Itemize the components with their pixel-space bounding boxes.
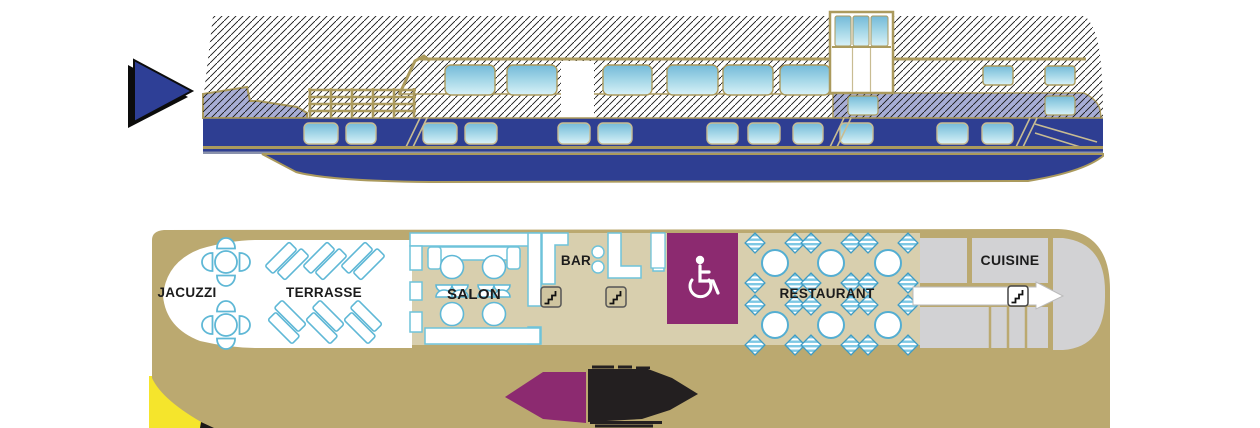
cuisine-area: CUISINE — [913, 238, 1105, 350]
hull-window-band — [203, 118, 1103, 150]
stern-lavender-band — [833, 93, 1101, 118]
ship-side-profile — [128, 12, 1103, 182]
ship-deck-plan-figure: JACUZZI TERRASSE — [0, 0, 1260, 428]
cuisine-label: CUISINE — [981, 252, 1040, 268]
stairs-icon — [541, 287, 561, 307]
deck-plan: JACUZZI TERRASSE — [149, 229, 1110, 428]
jacuzzi-label: JACUZZI — [157, 285, 216, 300]
salon-label: SALON — [447, 286, 501, 303]
restaurant-label: RESTAURANT — [780, 286, 875, 301]
deck-door-gap — [561, 61, 594, 118]
stairs-icon — [606, 287, 626, 307]
wheelhouse — [830, 12, 893, 93]
stairs-icon — [1008, 286, 1028, 306]
right-arrow-icon[interactable] — [128, 60, 192, 128]
terrasse-label: TERRASSE — [286, 285, 362, 300]
lower-hull — [203, 146, 1103, 182]
figure-canvas: JACUZZI TERRASSE — [0, 0, 1260, 428]
bar-label: BAR — [561, 253, 591, 268]
